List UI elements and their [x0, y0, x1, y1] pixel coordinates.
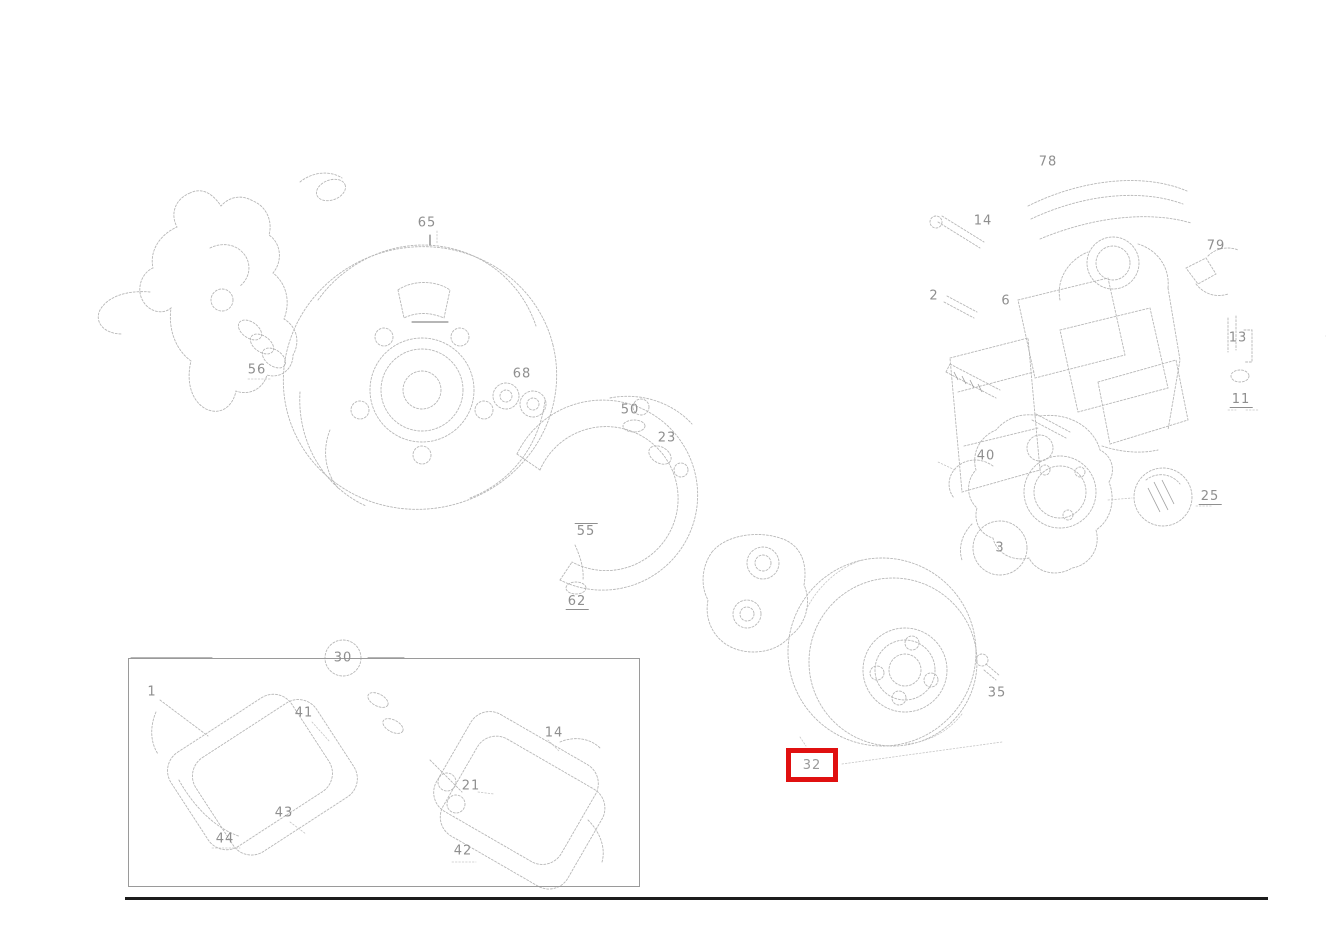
part-label-14[interactable]: 14 — [543, 726, 566, 741]
splash-shield — [517, 396, 698, 594]
part-label-30[interactable]: 30 — [332, 651, 355, 666]
part-label-6[interactable]: 6 — [999, 294, 1012, 309]
part-label-21[interactable]: 21 — [460, 779, 483, 794]
part-label-25[interactable]: 25 — [1199, 489, 1222, 505]
part-label-44[interactable]: 44 — [214, 832, 237, 847]
part-label-65[interactable]: 65 — [416, 216, 439, 231]
part-label-2[interactable]: 2 — [927, 289, 940, 304]
page-bottom-rule — [125, 897, 1268, 900]
steering-knuckle-right — [938, 415, 1132, 573]
part-label-11[interactable]: 11 — [1230, 392, 1253, 408]
highlighted-part-callout[interactable]: 32 — [786, 748, 838, 782]
caliper-carrier — [703, 534, 807, 652]
part-label-62[interactable]: 62 — [566, 594, 589, 610]
brake-backing-plate — [255, 218, 584, 539]
part-label-13[interactable]: 13 — [1227, 331, 1250, 346]
brake-disc — [788, 558, 977, 746]
parts-diagram-page: 6556685023556278142679131140325353014143… — [0, 0, 1326, 937]
part-label-50[interactable]: 50 — [619, 403, 642, 418]
part-label-56[interactable]: 56 — [246, 363, 269, 378]
part-label-78[interactable]: 78 — [1037, 155, 1060, 170]
disc-retaining-screw — [976, 654, 1000, 680]
leader-tick-32 — [800, 737, 806, 746]
part-label-42[interactable]: 42 — [452, 844, 475, 859]
leader-line-32 — [842, 742, 1002, 764]
part-label-23[interactable]: 23 — [656, 431, 679, 446]
part-label-79[interactable]: 79 — [1205, 239, 1228, 254]
retaining-spring-and-pins — [1186, 248, 1258, 410]
part-label-68[interactable]: 68 — [511, 367, 534, 382]
highlighted-part-number[interactable]: 32 — [803, 759, 822, 772]
inset-box — [128, 658, 640, 887]
part-label-14[interactable]: 14 — [972, 214, 995, 229]
part-label-41[interactable]: 41 — [293, 706, 316, 721]
part-label-1[interactable]: 1 — [145, 685, 158, 700]
steering-knuckle-left — [98, 173, 348, 411]
bolt-pair — [493, 383, 546, 417]
part-label-40[interactable]: 40 — [975, 449, 998, 464]
part-label-3[interactable]: 3 — [993, 541, 1006, 556]
part-label-43[interactable]: 43 — [273, 806, 296, 821]
part-label-55[interactable]: 55 — [575, 523, 598, 539]
part-label-35[interactable]: 35 — [986, 686, 1009, 701]
